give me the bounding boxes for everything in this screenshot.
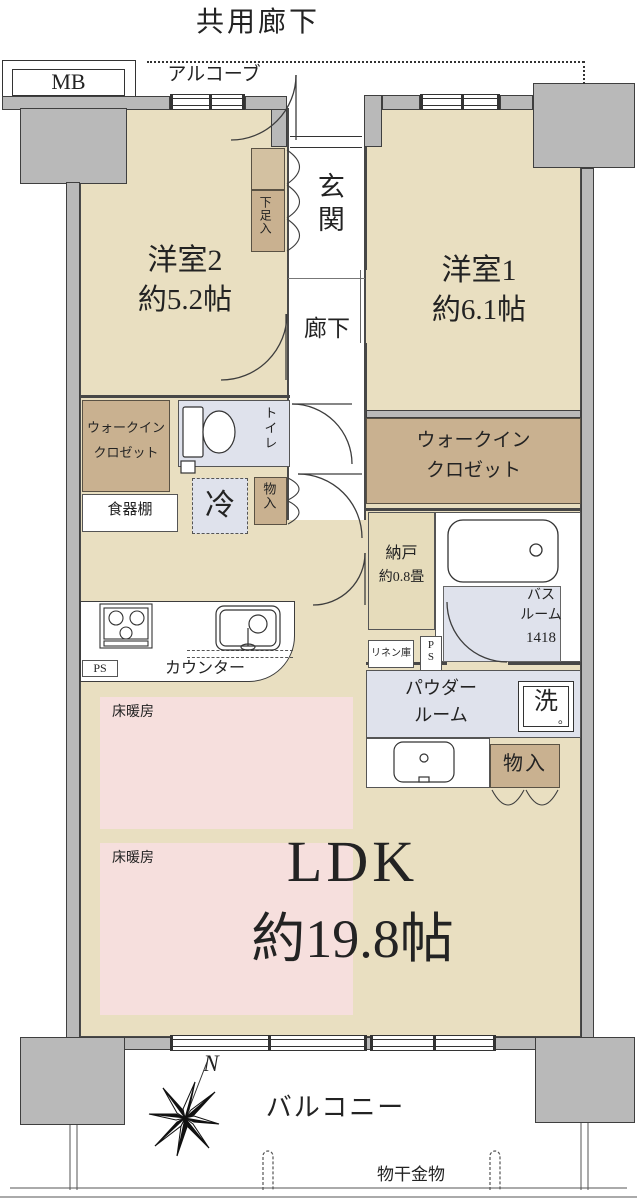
wall-hall-room1-lower: [364, 343, 367, 410]
wall-alcove-right-side: [364, 95, 382, 147]
window-mullion: [268, 1036, 271, 1050]
wall-wic2-bottom: [366, 508, 581, 511]
room2-size: 約5.2帖: [95, 283, 275, 317]
floor-plan: 共用廊下 MB アルコーブ 下足入 洋室2 約5.2帖 洋室1 約: [0, 0, 637, 1200]
wall-room1-top-right: [500, 95, 533, 110]
dotted-boundary-right: [583, 61, 585, 84]
floor-heating-1-label: 床暖房: [112, 705, 154, 722]
drying-fixture-label: 物干金物: [366, 1165, 456, 1185]
ps-label-1: PS: [82, 661, 118, 675]
ps-label-2: PS: [424, 639, 437, 663]
window-room1-top: [420, 94, 500, 110]
wic2-label-1: ウォークイン: [366, 430, 581, 452]
shoe-closet-upper: [251, 148, 285, 190]
counter-edge-dashed: [187, 650, 293, 658]
alcove-label: アルコーブ: [156, 64, 272, 86]
wall-room2-bottom: [80, 395, 290, 398]
window-ldk-right: [370, 1035, 496, 1051]
wall-room1-top-left: [382, 95, 420, 110]
wall-alcove-left-side: [271, 109, 287, 147]
window-mullion: [461, 95, 464, 109]
bath-size: 1418: [505, 630, 577, 648]
bath-label-1: バス: [505, 588, 577, 605]
toilet-label: トイレ: [262, 406, 277, 451]
genkan-step-line: [288, 278, 365, 279]
window-ldk-left: [170, 1035, 367, 1051]
balcony-label: バルコニー: [248, 1093, 423, 1124]
balcony-rails: [0, 1123, 637, 1197]
wall-top-right-block: [533, 83, 635, 168]
wall-left-strip: [66, 182, 80, 1040]
counter-label: カウンター: [140, 660, 270, 679]
wall-hall-room1-upper: [364, 147, 367, 270]
linen-label: リネン庫: [368, 648, 414, 660]
vanity-area: [366, 738, 490, 788]
window-room2-top: [170, 94, 245, 110]
common-corridor-label: 共用廊下: [178, 6, 338, 39]
wic1-label-2: クロゼット: [82, 445, 170, 460]
entrance-threshold: [290, 136, 362, 148]
wall-top-left-block: [20, 108, 127, 184]
wall-right-strip: [581, 168, 594, 1038]
dotted-boundary-top: [147, 61, 584, 63]
shoe-closet-label: 下足入: [258, 196, 272, 235]
genkan-hallway-area: [287, 108, 366, 520]
room1-name: 洋室1: [393, 253, 565, 288]
window-mullion: [209, 95, 212, 109]
wall-bottom-left-block: [20, 1037, 125, 1125]
laundry-dot: 。: [556, 712, 572, 726]
wic2-label-2: クロゼット: [366, 460, 581, 482]
wall-room1-wic2: [366, 410, 581, 418]
genkan-label: 玄関: [312, 172, 344, 238]
window-mullion: [433, 1036, 436, 1050]
wall-alcove-left-top: [245, 96, 287, 110]
north-label: N: [196, 1050, 226, 1077]
nando-name: 納戸: [368, 545, 435, 564]
hall-storage-label: 物入: [261, 482, 276, 510]
floor-heating-2-label: 床暖房: [112, 851, 154, 868]
powder-label-1: パウダー: [376, 678, 506, 699]
cupboard-label: 食器棚: [82, 502, 178, 520]
room2-name: 洋室2: [95, 243, 275, 278]
bath-label-2: ルーム: [505, 608, 577, 625]
wall-bottom-right-block: [535, 1037, 635, 1123]
powder-label-2: ルーム: [376, 705, 506, 726]
room1-size: 約6.1帖: [393, 293, 565, 327]
wic1-label-1: ウォークイン: [82, 420, 170, 435]
nando-size: 約0.8畳: [368, 570, 435, 587]
hallway-label: 廊下: [292, 315, 362, 342]
wall-bath-powder-right: [508, 662, 581, 665]
fridge-label: 冷: [192, 488, 248, 523]
ldk-name: LDK: [200, 828, 505, 896]
powder-storage-label: 物入: [490, 753, 560, 777]
mb-label: MB: [12, 69, 125, 95]
ldk-size: 約19.8帖: [170, 908, 535, 972]
